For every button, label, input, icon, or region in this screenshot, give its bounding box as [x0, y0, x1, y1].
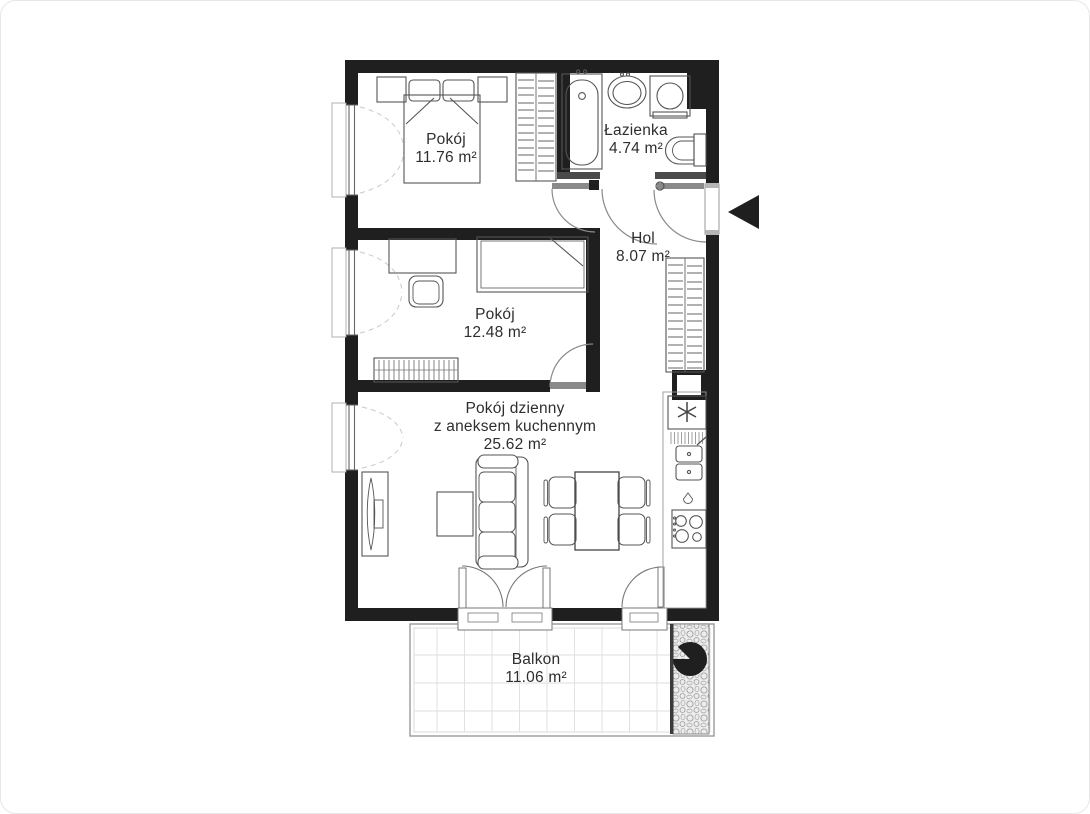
- room-area: 4.74 m²: [604, 140, 668, 158]
- nightstand-right: [478, 77, 507, 102]
- balcony-single-door: [622, 567, 667, 630]
- washbasin: [608, 73, 646, 108]
- bedroom1-wardrobe: [516, 73, 556, 181]
- pillow: [409, 80, 440, 101]
- tv-stand: [362, 472, 388, 556]
- room-name-line2: z aneksem kuchennym: [434, 418, 596, 436]
- room-area: 12.48 m²: [464, 324, 527, 342]
- entrance-arrow-icon: [728, 195, 759, 229]
- dining-set: [544, 472, 650, 550]
- room-area: 11.06 m²: [505, 669, 567, 687]
- nightstand-left: [377, 77, 406, 102]
- room-label-lazienka: Łazienka 4.74 m²: [604, 122, 668, 158]
- dresser: [374, 358, 458, 382]
- sofa: [476, 455, 528, 569]
- room-label-hol: Hol 8.07 m²: [616, 230, 670, 266]
- pillow: [443, 80, 474, 101]
- single-bed: [477, 237, 588, 292]
- livingroom-furniture: [362, 455, 650, 569]
- kitchen-sink: [676, 437, 706, 480]
- balcony-privacy-screen: [670, 624, 709, 734]
- desk-chair: [409, 276, 443, 307]
- bedroom1-window: [332, 103, 404, 197]
- dish-rack: [671, 432, 703, 444]
- kitchen-annex: [663, 392, 706, 608]
- livingroom-window: [332, 403, 403, 472]
- room-area: 11.76 m²: [415, 149, 477, 167]
- room-label-pokoj-dzienny: Pokój dzienny z aneksem kuchennym 25.62 …: [434, 400, 596, 454]
- cabinet-handle: [684, 493, 693, 504]
- room-name: Łazienka: [604, 122, 668, 140]
- room-label-pokoj-1: Pokój 11.76 m²: [415, 131, 477, 167]
- room-area: 25.62 m²: [434, 436, 596, 454]
- bedroom1-door-leaf: [552, 183, 595, 189]
- coffee-table: [437, 492, 473, 536]
- room-name: Pokój dzienny: [434, 400, 596, 418]
- fridge: [668, 396, 706, 429]
- room-label-pokoj-2: Pokój 12.48 m²: [464, 306, 527, 342]
- room-name: Hol: [616, 230, 670, 248]
- washing-machine: [650, 76, 690, 118]
- desk: [389, 239, 456, 273]
- toilet: [666, 134, 707, 166]
- room-name: Pokój: [415, 131, 477, 149]
- hall-wardrobe: [666, 258, 704, 372]
- windows: [332, 103, 404, 472]
- fridge-snowflake-icon: [678, 402, 696, 422]
- room-area: 8.07 m²: [616, 248, 670, 266]
- room-name: Balkon: [505, 651, 567, 669]
- floorplan-canvas: Pokój 11.76 m² Łazienka 4.74 m² Hol 8.07…: [0, 0, 1090, 814]
- room-label-balkon: Balkon 11.06 m²: [505, 651, 567, 687]
- stove: [672, 510, 706, 548]
- bedroom2-window: [332, 248, 402, 337]
- room-name: Pokój: [464, 306, 527, 324]
- balcony-french-door: [458, 566, 552, 630]
- hall-furniture: [666, 258, 704, 372]
